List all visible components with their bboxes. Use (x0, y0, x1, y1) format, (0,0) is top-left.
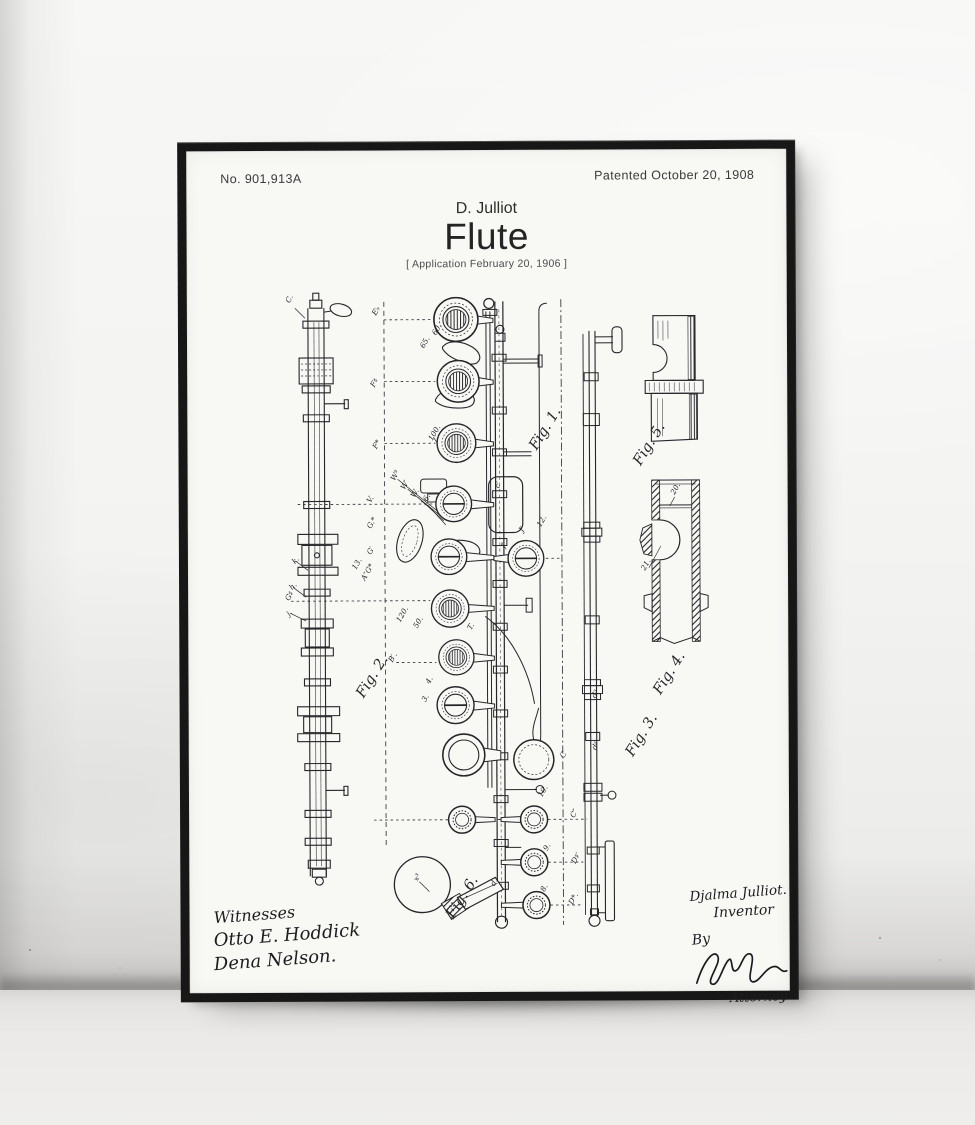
part-label: 21. (638, 557, 652, 573)
poster-title: Flute (186, 215, 786, 260)
poster-paper: Fig. 1. Fig. 2. Fig. 3. Fig. 4. Fig. 5. … (186, 149, 790, 994)
part-label: F* (370, 438, 383, 451)
part-label: 13. (350, 556, 364, 571)
attorney-label: Attorney (730, 988, 801, 1006)
part-label: D*. (566, 891, 580, 907)
figure-2-side-view (289, 293, 356, 885)
part-label: x³ (411, 872, 422, 883)
part-label: j. (283, 608, 294, 619)
part-label: 20. (668, 481, 682, 497)
part-label: W. (409, 487, 421, 499)
part-label: 9. (541, 842, 552, 853)
part-label: d² (590, 740, 602, 751)
part-label: 3. (419, 693, 430, 704)
part-label: d³ (589, 688, 601, 699)
part-label: W′ (399, 478, 412, 491)
figure-label: Fig. 4. (650, 649, 689, 698)
part-label: V. (365, 494, 376, 505)
scene: Fig. 1. Fig. 2. Fig. 3. Fig. 4. Fig. 5. … (0, 0, 975, 1125)
part-label: D♯′ (569, 851, 583, 866)
part-label: 120. (394, 605, 410, 624)
part-label: G.* (365, 515, 379, 530)
part-label: W³ (389, 469, 402, 483)
part-label: G′ (365, 545, 377, 556)
part-label: C. (283, 293, 294, 304)
part-label: 12. (535, 514, 549, 529)
patent-date: Patented October 20, 1908 (594, 168, 754, 183)
part-label: T. (465, 621, 476, 631)
witnesses-block: Witnesses Otto E. Hoddick Dena Nelson. (213, 903, 360, 971)
figure-label: Fig. 1. (526, 405, 565, 454)
part-label: 4. (423, 675, 435, 687)
inventor-block: Djalma Julliot. Inventor By Attorney (689, 885, 800, 1005)
figure-label: Fig. 5. (630, 420, 669, 469)
part-label: J′ (516, 525, 527, 536)
part-label: 65. (418, 335, 432, 350)
inventor-label: Inventor (713, 900, 800, 921)
part-label: c′ (493, 480, 504, 490)
attorney-signature-scribble (692, 943, 792, 991)
part-label: C″ (568, 807, 580, 819)
poster-frame: Fig. 1. Fig. 2. Fig. 3. Fig. 4. Fig. 5. … (177, 140, 799, 1003)
part-label: F♯ (368, 377, 381, 390)
part-label: C′ (558, 748, 570, 759)
patent-drawing: Fig. 1. Fig. 2. Fig. 3. Fig. 4. Fig. 5. … (186, 149, 790, 994)
figure-label: Fig. 3. (622, 711, 661, 760)
figure-3-rod (581, 327, 625, 927)
part-label: 50. (411, 615, 425, 630)
patent-number: No. 901,913A (220, 172, 301, 186)
part-label: E♭ (369, 305, 382, 318)
